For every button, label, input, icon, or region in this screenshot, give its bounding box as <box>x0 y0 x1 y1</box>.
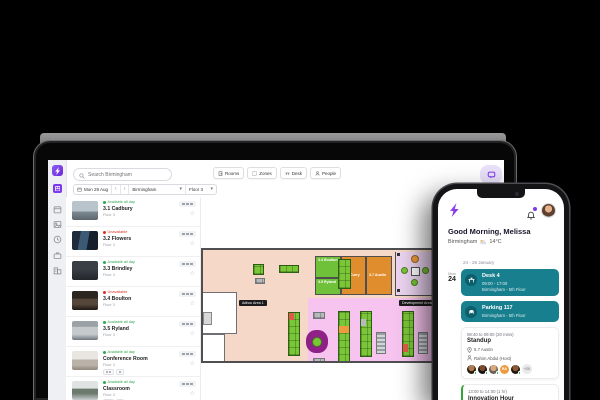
location-value: Birmingham <box>132 187 156 192</box>
room-list-item[interactable]: Available all day 3.1 Cadbury Floor 3 ☆ <box>66 197 201 227</box>
event-time: 13:00 to 14:00 (1 hr) <box>468 389 553 394</box>
desk-cluster[interactable] <box>255 278 265 284</box>
room-list-item[interactable]: Available all day 3.3 Brindley Floor 3 ☆ <box>66 257 201 287</box>
notification-dot <box>533 207 537 211</box>
booking-time: 09:00 - 17:00 <box>482 281 555 286</box>
pod-chair-orange <box>411 255 419 263</box>
room-thumbnail <box>72 321 98 340</box>
desk-cluster[interactable] <box>253 264 264 275</box>
room-list-panel: Available all day 3.1 Cadbury Floor 3 ☆ … <box>66 197 201 400</box>
event-title: Innovation Hour <box>468 396 553 400</box>
favorite-star-icon[interactable]: ☆ <box>190 211 195 217</box>
availability-status: Available all day <box>103 350 148 354</box>
favorite-star-icon[interactable]: ☆ <box>190 241 195 247</box>
room-list-item[interactable]: Unavailable 3.4 Boulton Floor 3 ☆ <box>66 287 201 317</box>
view-type-buttons: Rooms Zones Desk People <box>213 167 341 179</box>
attendee-overflow-count[interactable]: +20 <box>522 364 532 374</box>
event-card-standup[interactable]: 08:40 to 09:00 (20 mins) Standup 5.7 Aus… <box>461 327 559 380</box>
attendee-avatar <box>467 365 476 374</box>
zone-label: Adhoc Area 1 <box>239 300 267 306</box>
floor-select[interactable]: Floor 3 ▾ <box>186 185 216 194</box>
desk-cluster[interactable] <box>418 332 428 354</box>
support-chat-button[interactable] <box>480 165 502 184</box>
booking-title: Desk 4 <box>482 273 555 279</box>
rooms-button[interactable]: Rooms <box>213 167 244 179</box>
greeting-text: Good Morning, Melissa <box>448 227 531 236</box>
day-column: Mon 24 <box>445 271 459 283</box>
car-icon <box>465 306 477 318</box>
desk-cluster[interactable] <box>288 312 300 356</box>
availability-status: Available all day <box>103 320 135 324</box>
desk-cluster[interactable] <box>360 311 372 357</box>
room-amenities-badge <box>179 291 196 297</box>
pod-chair <box>401 267 408 274</box>
room-name: 3.1 Cadbury <box>103 206 135 212</box>
location-weather: Birmingham 14°C <box>448 239 502 245</box>
date-value: Mon 29 Aug <box>84 187 108 192</box>
availability-status: Available all day <box>103 260 135 264</box>
date-prev-button[interactable]: ‹ <box>112 185 121 194</box>
availability-status: Unavailable <box>103 290 131 294</box>
camera-dot <box>515 192 519 196</box>
weather-icon <box>479 239 487 245</box>
meeting-oval-table[interactable] <box>306 330 328 353</box>
room-thumbnail <box>72 231 98 250</box>
room-floor: Floor 3 <box>103 363 148 367</box>
pod-chair <box>422 267 429 274</box>
location-select[interactable]: Birmingham ▾ <box>129 185 186 194</box>
room-list-item[interactable]: Unavailable 3.2 Flowers Floor 3 ☆ <box>66 227 201 257</box>
map-structure <box>203 312 212 325</box>
booking-title: Parking 117 <box>482 305 555 311</box>
desk-icon <box>465 274 477 286</box>
brand-logo <box>52 165 63 176</box>
map-room[interactable]: 3.7 Austin <box>366 256 392 295</box>
filter-bar: Mon 29 Aug ‹ › Birmingham ▾ Floor 3 ▾ <box>73 184 217 195</box>
phone-screen: Good Morning, Melissa Birmingham 14°C 24… <box>438 189 564 400</box>
search-input[interactable] <box>88 172 166 178</box>
unassigned-desk <box>361 319 366 326</box>
pin-icon <box>467 347 472 353</box>
room-amenities-badge <box>179 261 196 267</box>
city-label: Birmingham <box>448 239 477 245</box>
sidebar-item-workspace[interactable] <box>53 251 62 260</box>
room-amenities-badge <box>179 201 196 207</box>
date-picker[interactable]: Mon 29 Aug <box>74 185 112 194</box>
sidebar-item-schedule[interactable] <box>53 235 62 244</box>
booking-place: Birmingham - 5th Floor <box>482 313 555 318</box>
room-name: Conference Room <box>103 356 148 362</box>
zone-label: Development Area <box>399 300 435 306</box>
brand-logo <box>448 203 460 217</box>
attendee-avatar <box>489 365 498 374</box>
pod-table <box>411 267 420 276</box>
desk-cluster[interactable] <box>338 311 350 363</box>
favorite-star-icon[interactable]: ☆ <box>190 271 195 277</box>
desk-cluster[interactable] <box>279 265 299 273</box>
date-range-label[interactable]: 24 - 28 January <box>463 260 494 265</box>
booking-card-parking[interactable]: Parking 117 Birmingham - 5th Floor <box>461 301 559 322</box>
attendee-avatars: RA +20 <box>467 364 553 374</box>
event-card-innovation[interactable]: 13:00 to 14:00 (1 hr) Innovation Hour <box>461 384 559 400</box>
booked-desk <box>289 313 294 320</box>
room-name: 3.2 Flowers <box>103 236 131 242</box>
map-structure <box>201 334 225 363</box>
availability-status: Available all day <box>103 200 135 204</box>
search-icon <box>79 166 85 184</box>
favorite-star-icon[interactable]: ☆ <box>190 361 195 367</box>
room-feature-chip <box>103 369 114 375</box>
floor-value: Floor 3 <box>189 187 203 192</box>
room-name: 3.4 Boulton <box>103 296 131 302</box>
sensor-dot <box>397 289 400 292</box>
marketing-composite: Mon 29 Aug ‹ › Birmingham ▾ Floor 3 ▾ Ro… <box>0 0 600 400</box>
room-list-item[interactable]: Available all day Classroom Floor 3 ☆ <box>66 377 201 400</box>
favorite-star-icon[interactable]: ☆ <box>190 331 195 337</box>
room-floor: Floor 3 <box>103 303 131 307</box>
sidebar-item-screens[interactable] <box>53 220 62 229</box>
room-feature-chip <box>116 369 124 375</box>
sidebar-item-floorplan[interactable] <box>53 184 62 193</box>
desk-button[interactable]: Desk <box>280 167 307 179</box>
person-icon <box>467 355 472 361</box>
sensor-dot <box>397 253 400 256</box>
room-thumbnail <box>72 261 98 280</box>
date-next-button[interactable]: › <box>121 185 130 194</box>
desk-cluster[interactable] <box>313 358 325 363</box>
room-name: 3.3 Brindley <box>103 266 135 272</box>
room-floor: Floor 3 <box>103 273 135 277</box>
room-floor: Floor 3 <box>103 213 135 217</box>
desk-cluster[interactable] <box>376 332 386 354</box>
room-floor: Floor 3 <box>103 243 131 247</box>
phone-device: Good Morning, Melissa Birmingham 14°C 24… <box>433 184 569 400</box>
booking-place: Birmingham - 5th Floor <box>482 287 555 292</box>
room-name: 3.5 Ryland <box>103 326 135 332</box>
favorite-star-icon[interactable]: ☆ <box>190 391 195 397</box>
desk-cluster[interactable] <box>402 311 414 357</box>
room-floor: Floor 3 <box>103 393 135 397</box>
event-host: Rahim Abdul (Host) <box>467 355 553 361</box>
chevron-down-icon: ▾ <box>210 187 213 192</box>
event-title: Standup <box>467 338 553 344</box>
desk-cluster[interactable] <box>313 312 325 319</box>
room-thumbnail <box>72 351 98 370</box>
room-thumbnail <box>72 381 98 400</box>
people-button[interactable]: People <box>310 167 341 179</box>
room-amenities-badge <box>179 381 196 387</box>
attendee-avatar <box>511 365 520 374</box>
room-amenities-badge <box>179 231 196 237</box>
attendee-avatar-initials: RA <box>500 365 509 374</box>
desk-cluster[interactable] <box>338 259 351 289</box>
room-floor: Floor 3 <box>103 333 135 337</box>
room-thumbnail <box>72 291 98 310</box>
room-name: Classroom <box>103 386 135 392</box>
availability-status: Available all day <box>103 380 135 384</box>
booked-desk <box>339 326 349 333</box>
room-amenities-badge <box>179 351 196 357</box>
booked-desk <box>403 344 408 352</box>
room-thumbnail <box>72 201 98 220</box>
room-list-item[interactable]: Available all day Conference Room Floor … <box>66 347 201 377</box>
event-time: 08:40 to 09:00 (20 mins) <box>467 332 553 337</box>
room-list-item[interactable]: Available all day 3.5 Ryland Floor 3 ☆ <box>66 317 201 347</box>
app-sidebar <box>48 160 67 400</box>
search-bar <box>73 168 172 181</box>
chevron-down-icon: ▾ <box>179 187 182 192</box>
room-amenities-badge <box>179 321 196 327</box>
sidebar-item-buildings[interactable] <box>53 266 62 275</box>
attendee-avatar <box>478 365 487 374</box>
favorite-star-icon[interactable]: ☆ <box>190 301 195 307</box>
pod-chair <box>411 279 418 286</box>
phone-notch <box>477 189 525 198</box>
booking-card-desk[interactable]: Desk 4 09:00 - 17:00 Birmingham - 5th Fl… <box>461 269 559 296</box>
temperature-label: 14°C <box>489 239 501 245</box>
availability-status: Unavailable <box>103 230 131 234</box>
sidebar-item-calendar[interactable] <box>53 205 62 214</box>
avatar[interactable] <box>541 203 556 218</box>
event-room: 5.7 Austin <box>467 347 553 353</box>
zones-button[interactable]: Zones <box>247 167 277 179</box>
